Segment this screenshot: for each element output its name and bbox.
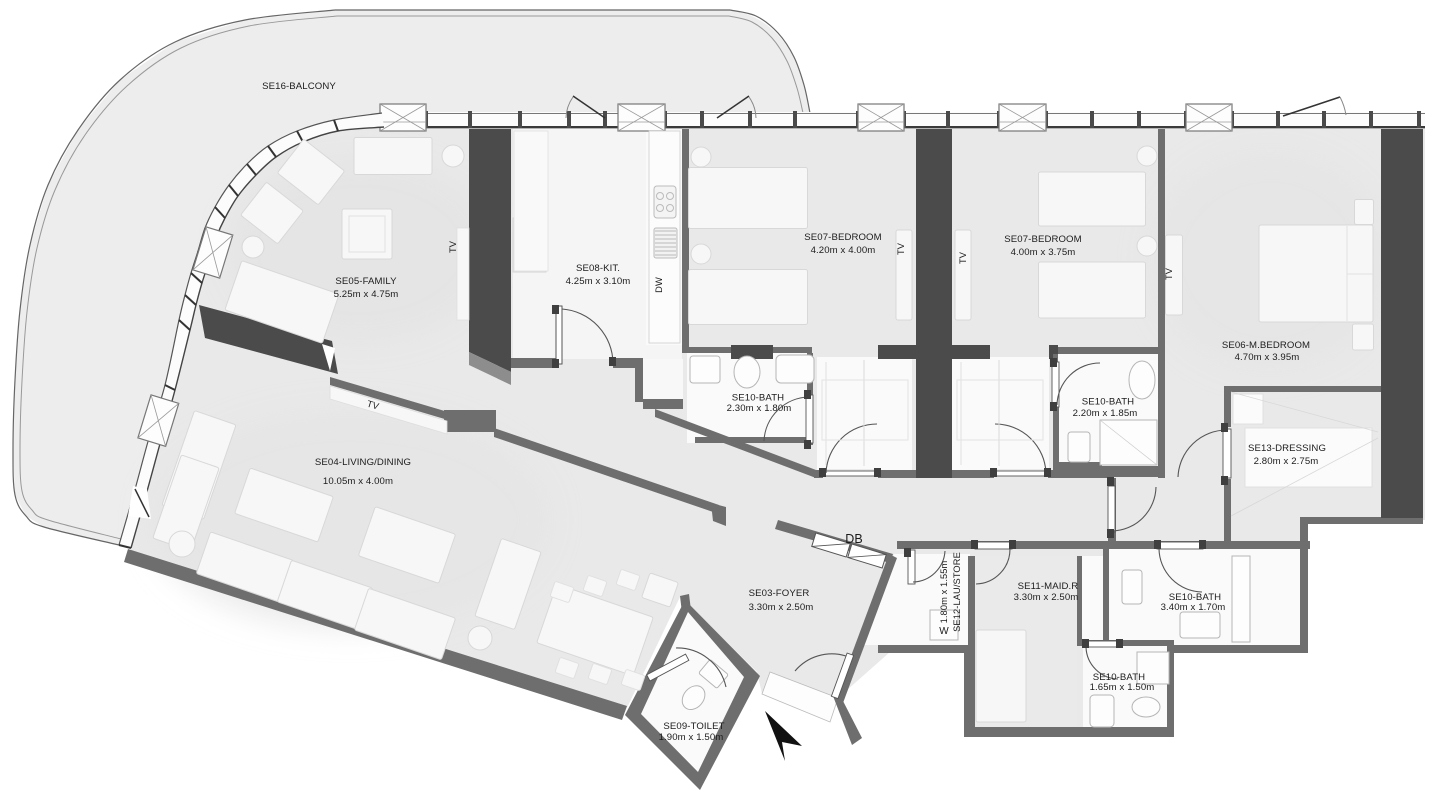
svg-text:4.00m x 3.75m: 4.00m x 3.75m — [1011, 247, 1076, 258]
svg-text:1.65m x 1.50m: 1.65m x 1.50m — [1090, 682, 1155, 693]
svg-text:SE07-BEDROOM: SE07-BEDROOM — [1004, 234, 1081, 245]
svg-text:DW: DW — [654, 277, 664, 293]
svg-text:SE07-BEDROOM: SE07-BEDROOM — [804, 232, 881, 243]
svg-text:SE10-BATH: SE10-BATH — [1082, 397, 1134, 408]
svg-text:SE16-BALCONY: SE16-BALCONY — [262, 81, 336, 92]
svg-text:SE09-TOILET: SE09-TOILET — [663, 721, 724, 732]
svg-text:10.05m x 4.00m: 10.05m x 4.00m — [323, 476, 393, 487]
svg-text:3.30m x 2.50m: 3.30m x 2.50m — [1014, 592, 1079, 603]
svg-text:SE13-DRESSING: SE13-DRESSING — [1248, 443, 1326, 454]
svg-text:TV: TV — [958, 251, 968, 264]
svg-text:SE04-LIVING/DINING: SE04-LIVING/DINING — [315, 457, 411, 468]
svg-text:1.80m x 1.55m: 1.80m x 1.55m — [939, 560, 949, 623]
svg-text:3.30m x 2.50m: 3.30m x 2.50m — [749, 602, 814, 613]
svg-text:4.70m x 3.95m: 4.70m x 3.95m — [1235, 352, 1300, 363]
svg-text:SE06-M.BEDROOM: SE06-M.BEDROOM — [1222, 340, 1310, 351]
svg-text:SE05-FAMILY: SE05-FAMILY — [335, 276, 397, 287]
svg-text:TV: TV — [896, 242, 906, 255]
svg-text:SE10-BATH: SE10-BATH — [732, 393, 784, 404]
svg-text:TV: TV — [1164, 267, 1174, 280]
svg-text:4.25m x 3.10m: 4.25m x 3.10m — [566, 276, 631, 287]
svg-text:SE03-FOYER: SE03-FOYER — [749, 588, 810, 599]
svg-text:4.20m x 4.00m: 4.20m x 4.00m — [811, 245, 876, 256]
svg-text:2.20m x 1.85m: 2.20m x 1.85m — [1073, 408, 1138, 419]
svg-text:SE12-LAU/STORE: SE12-LAU/STORE — [952, 552, 962, 632]
svg-text:1.90m x 1.50m: 1.90m x 1.50m — [659, 732, 724, 743]
svg-text:2.80m x 2.75m: 2.80m x 2.75m — [1254, 456, 1319, 467]
svg-text:SE11-MAID.R: SE11-MAID.R — [1018, 581, 1079, 592]
svg-text:DB: DB — [845, 532, 863, 546]
svg-text:W: W — [939, 626, 949, 637]
svg-text:TV: TV — [448, 240, 458, 253]
svg-text:SE08-KIT.: SE08-KIT. — [576, 263, 620, 274]
svg-text:3.40m x 1.70m: 3.40m x 1.70m — [1161, 602, 1226, 613]
svg-text:5.25m x 4.75m: 5.25m x 4.75m — [334, 289, 399, 300]
svg-text:2.30m x 1.80m: 2.30m x 1.80m — [727, 403, 792, 414]
